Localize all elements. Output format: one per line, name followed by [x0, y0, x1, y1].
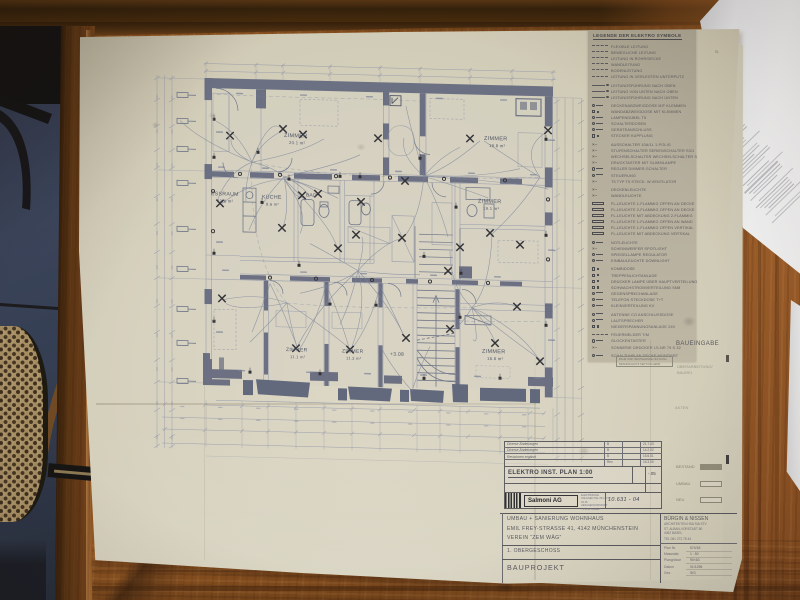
- svg-text:ZIMMER: ZIMMER: [284, 133, 307, 140]
- svg-text:11.3 m²: 11.3 m²: [346, 355, 362, 360]
- svg-text:22.6 m²: 22.6 m²: [217, 198, 234, 203]
- svg-text:11.1 m²: 11.1 m²: [290, 354, 306, 359]
- svg-text:19.1 m²: 19.1 m²: [483, 206, 500, 211]
- svg-text:18.8 m²: 18.8 m²: [487, 356, 504, 361]
- svg-text:BAD: BAD: [306, 192, 317, 198]
- svg-text:ZIMMER: ZIMMER: [286, 347, 308, 354]
- svg-text:18.8 m²: 18.8 m²: [489, 143, 506, 148]
- svg-text:9.6 m²: 9.6 m²: [266, 202, 280, 207]
- svg-text:+3.08: +3.08: [390, 352, 404, 358]
- svg-text:ZIMMER: ZIMMER: [342, 348, 364, 355]
- svg-text:20.1 m²: 20.1 m²: [289, 140, 306, 145]
- svg-text:KÜCHE: KÜCHE: [262, 193, 282, 200]
- svg-text:ZIMMER: ZIMMER: [478, 199, 501, 206]
- svg-text:ESSRAUM: ESSRAUM: [211, 191, 239, 198]
- svg-text:ZIMMER: ZIMMER: [484, 136, 507, 143]
- svg-text:ZIMMER: ZIMMER: [482, 349, 505, 356]
